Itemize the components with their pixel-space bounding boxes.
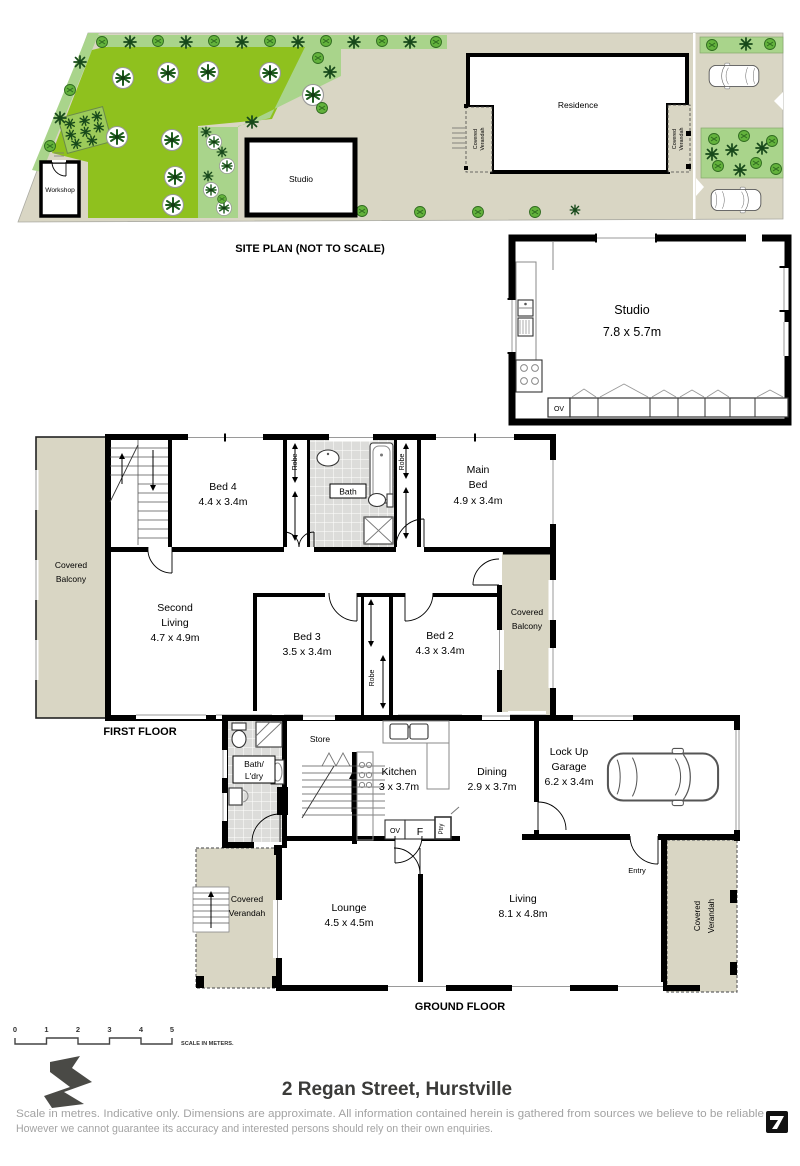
- ff-robe-lower-label: Robe: [369, 670, 376, 687]
- ff-mainbed-2: Bed: [469, 479, 488, 491]
- disclaimer-line-1: Scale in metres. Indicative only. Dimens…: [16, 1108, 764, 1120]
- verandah-right-label-1: Covered: [672, 129, 678, 149]
- gf-entry-label: Entry: [628, 866, 646, 875]
- gf-verandah-right-label-1: Covered: [693, 901, 702, 931]
- ff-secondliving-1: Second: [157, 602, 193, 614]
- ff-balcony-right-label-2: Balcony: [512, 621, 543, 631]
- ff-top-windows: [188, 434, 514, 442]
- verandah-right-label-2: Verandah: [679, 127, 685, 150]
- ff-bed2-dims: 4.3 x 3.4m: [415, 645, 464, 657]
- residence-label: Residence: [558, 100, 598, 110]
- basin-icon: [317, 450, 339, 466]
- gf-dining-dims: 2.9 x 3.7m: [467, 781, 516, 793]
- gf-ptry-label: Ptry: [439, 824, 445, 835]
- stove-icon: [516, 360, 542, 392]
- scale-tick-0: 0: [13, 1025, 17, 1034]
- studio-building: Studio: [247, 140, 355, 215]
- ff-balcony-right-label-1: Covered: [511, 607, 543, 617]
- ff-bath-label: Bath: [339, 487, 357, 497]
- ff-balcony-left: Covered Balcony: [34, 437, 109, 718]
- studio-site-label: Studio: [289, 174, 313, 184]
- gf-store-label: Store: [310, 734, 331, 744]
- site-plan-caption: SITE PLAN (NOT TO SCALE): [235, 243, 385, 255]
- shower-icon: [256, 722, 282, 747]
- verandah-left-label-1: Covered: [473, 129, 479, 149]
- scale-bar: 0 1 2 3 4 5 SCALE IN METERS.: [13, 1025, 234, 1047]
- sink-icon: [518, 300, 533, 336]
- gf-bottom-windows: [388, 982, 663, 991]
- gf-verandah-right: Covered Verandah: [667, 840, 737, 992]
- first-floor-caption: FIRST FLOOR: [103, 726, 176, 738]
- car-icon: [709, 63, 759, 89]
- gf-verandah-right-label-2: Verandah: [707, 899, 716, 933]
- agency-logo-icon: [44, 1056, 92, 1108]
- scale-tick-5: 5: [170, 1025, 174, 1034]
- gf-kitchen-name: Kitchen: [381, 766, 416, 778]
- ff-balcony-right: Covered Balcony: [502, 552, 557, 715]
- fence-line: [693, 33, 696, 219]
- ff-bed3-dims: 3.5 x 3.4m: [282, 646, 331, 658]
- gf-lounge-dims: 4.5 x 4.5m: [324, 917, 373, 929]
- address-title: 2 Regan Street, Hurstville: [282, 1079, 512, 1100]
- residence-building: Residence Covered Verandah Covered Veran…: [452, 55, 691, 172]
- studio-dims: 7.8 x 5.7m: [603, 325, 661, 339]
- shower-icon: [364, 517, 393, 544]
- scale-caption: SCALE IN METERS.: [181, 1041, 234, 1047]
- ff-bed4-dims: 4.4 x 3.4m: [198, 496, 247, 508]
- scale-tick-4: 4: [139, 1025, 144, 1034]
- ff-secondliving-dims: 4.7 x 4.9m: [150, 632, 199, 644]
- first-floor: Covered Balcony Covered Balcony: [34, 434, 558, 739]
- workshop: Workshop: [41, 153, 79, 216]
- gf-garage-name-2: Garage: [551, 761, 586, 773]
- disclaimer-line-2: However we cannot guarantee its accuracy…: [16, 1123, 493, 1135]
- gf-ov-label: OV: [390, 828, 400, 835]
- verandah-left-label-2: Verandah: [480, 127, 486, 150]
- scale-tick-1: 1: [44, 1025, 48, 1034]
- ground-floor: Covered Verandah Covered Verandah: [193, 712, 742, 1013]
- garage-door: [734, 730, 742, 830]
- car-icon: [608, 748, 718, 805]
- gf-verandah-left-label-1: Covered: [231, 894, 263, 904]
- ground-floor-caption: GROUND FLOOR: [415, 1001, 505, 1013]
- toilet-icon: [232, 723, 246, 748]
- scale-tick-3: 3: [107, 1025, 111, 1034]
- gf-living-dims: 8.1 x 4.8m: [498, 908, 547, 920]
- ff-bed2-name: Bed 2: [426, 630, 454, 642]
- ff-bed4-name: Bed 4: [209, 481, 237, 493]
- gf-bath-label-1: Bath/: [244, 759, 264, 769]
- toilet-icon: [369, 494, 394, 508]
- car-icon: [711, 187, 761, 213]
- scale-tick-2: 2: [76, 1025, 80, 1034]
- gf-external-stairs: [193, 887, 229, 932]
- gf-garage-dims: 6.2 x 3.4m: [544, 776, 593, 788]
- ff-mainbed-dims: 4.9 x 3.4m: [453, 495, 502, 507]
- studio-plan: OV Studio 7.8 x 5.7m: [508, 234, 789, 423]
- floorplan-page: Workshop Studio Residence Covered Verand…: [0, 0, 800, 1166]
- ff-balcony-left-label-2: Balcony: [56, 574, 87, 584]
- studio-name: Studio: [614, 303, 649, 317]
- gf-verandah-left: Covered Verandah: [193, 845, 280, 988]
- workshop-label: Workshop: [45, 187, 75, 194]
- gf-lounge-name: Lounge: [331, 902, 366, 914]
- site-plan: Workshop Studio Residence Covered Verand…: [18, 33, 783, 255]
- floorplan-drawing: Workshop Studio Residence Covered Verand…: [0, 0, 800, 1166]
- ff-secondliving-2: Living: [161, 617, 189, 629]
- gf-dining-name: Dining: [477, 766, 507, 778]
- gf-kitchen-dims: 3 x 3.7m: [379, 781, 420, 793]
- studio-ov-label: OV: [554, 406, 564, 413]
- ff-robe-right-label: Robe: [399, 454, 406, 471]
- gf-garage-name-1: Lock Up: [550, 746, 589, 758]
- gf-verandah-left-label-2: Verandah: [229, 908, 266, 918]
- gf-living-name: Living: [509, 893, 537, 905]
- footer: 0 1 2 3 4 5 SCALE IN METERS. 2 Regan Str…: [13, 1025, 788, 1135]
- footer-brand-icon: [766, 1111, 788, 1133]
- ff-bed3-name: Bed 3: [293, 631, 321, 643]
- garden-bed-mid: [701, 128, 783, 178]
- gf-bath-label-2: L'dry: [245, 771, 264, 781]
- ff-mainbed-1: Main: [467, 464, 490, 476]
- garden-bed-top: [700, 37, 783, 53]
- ff-balcony-left-label-1: Covered: [55, 560, 87, 570]
